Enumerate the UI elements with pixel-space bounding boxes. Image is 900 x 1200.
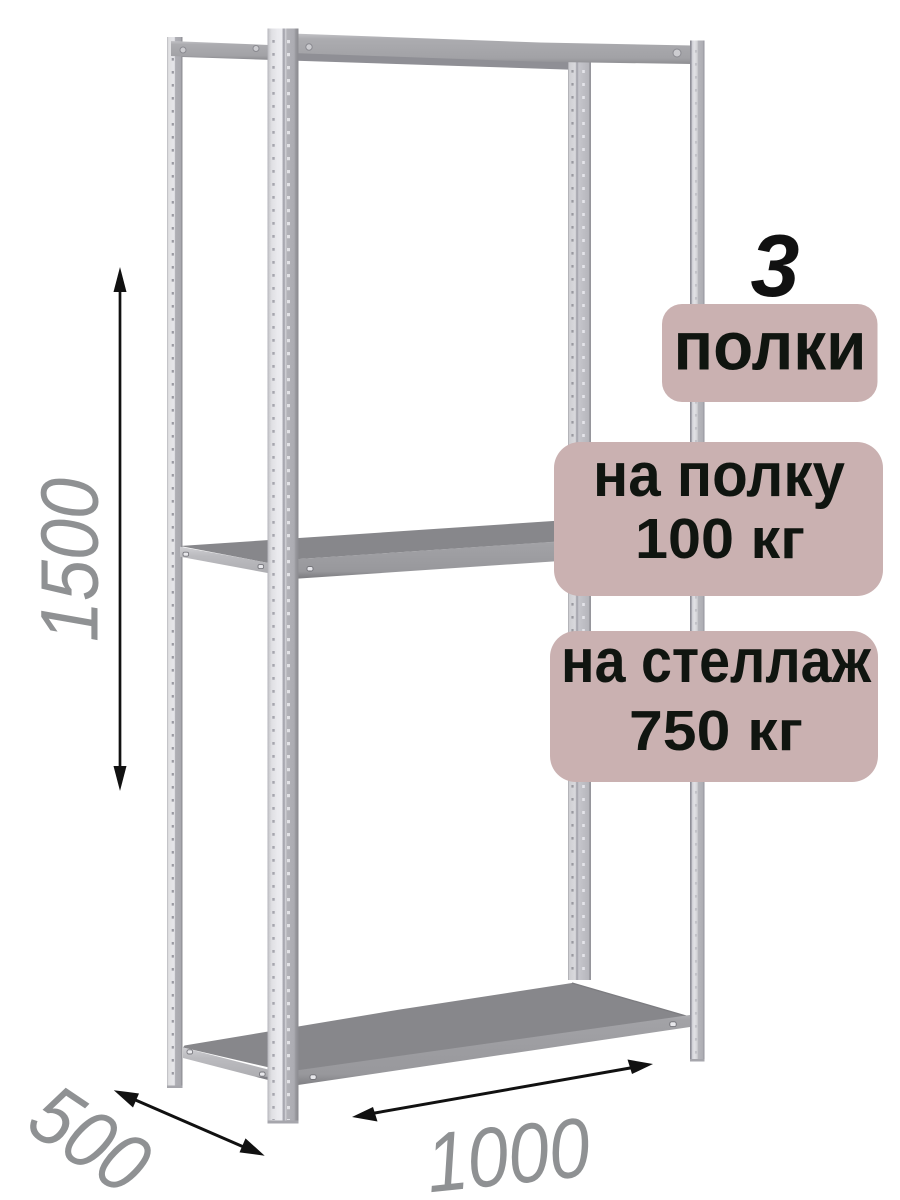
svg-text:100 кг: 100 кг [635,507,805,571]
svg-text:3: 3 [751,216,800,315]
svg-text:1000: 1000 [422,1100,595,1200]
svg-text:на полку: на полку [593,441,845,510]
svg-text:1500: 1500 [25,478,116,642]
svg-text:на стеллаж: на стеллаж [561,627,872,696]
svg-text:750 кг: 750 кг [629,699,803,763]
svg-text:полки: полки [674,308,867,385]
